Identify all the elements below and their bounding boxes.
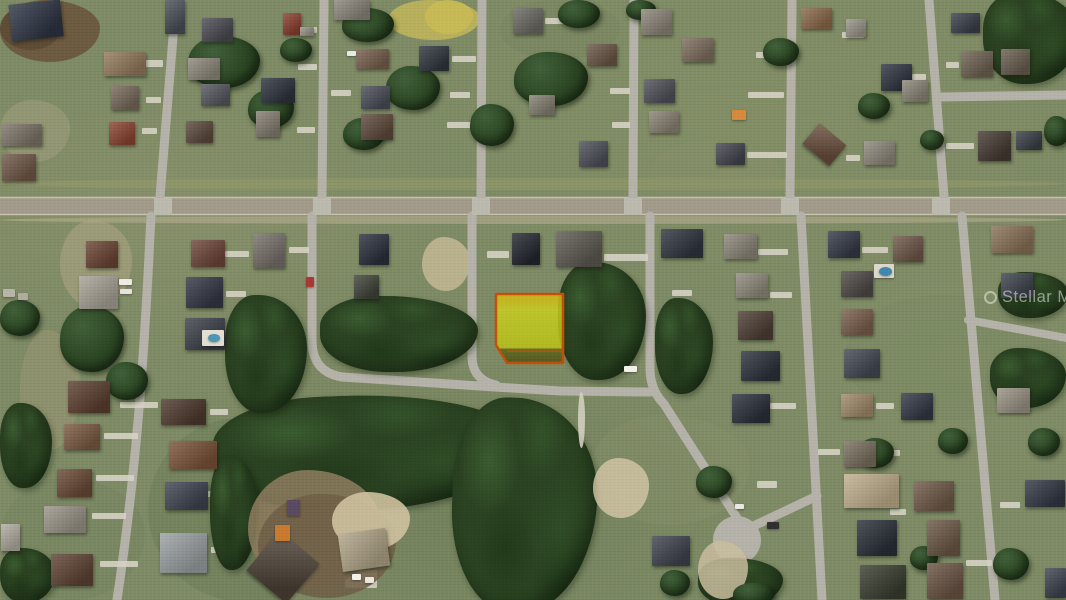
watermark: Stellar MLS — [984, 288, 1066, 307]
highlighted-parcel-overlay — [0, 0, 1066, 600]
watermark-text: Stellar MLS — [1002, 288, 1066, 307]
watermark-logo-icon — [984, 291, 997, 304]
highlighted-parcel — [496, 294, 563, 363]
satellite-map-image: Stellar MLS — [0, 0, 1066, 600]
